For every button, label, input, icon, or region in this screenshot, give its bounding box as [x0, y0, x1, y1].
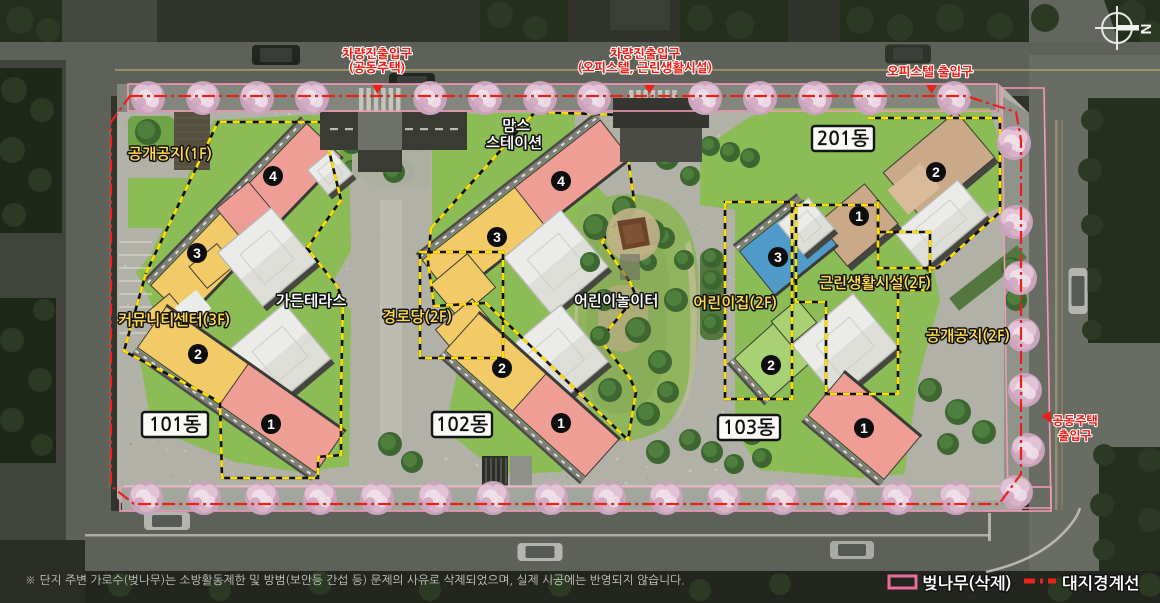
svg-text:2: 2: [932, 164, 940, 180]
svg-text:1: 1: [267, 416, 275, 432]
svg-text:2: 2: [767, 357, 775, 373]
svg-text:1: 1: [855, 208, 863, 224]
svg-text:3: 3: [193, 245, 201, 261]
svg-text:2: 2: [194, 346, 202, 362]
svg-text:3: 3: [774, 249, 782, 265]
svg-text:3: 3: [493, 229, 501, 245]
svg-text:1: 1: [557, 415, 565, 431]
svg-text:2: 2: [498, 360, 506, 376]
svg-text:4: 4: [557, 173, 565, 189]
svg-text:1: 1: [860, 420, 868, 436]
svg-text:N: N: [1137, 24, 1154, 35]
svg-text:4: 4: [269, 168, 277, 184]
